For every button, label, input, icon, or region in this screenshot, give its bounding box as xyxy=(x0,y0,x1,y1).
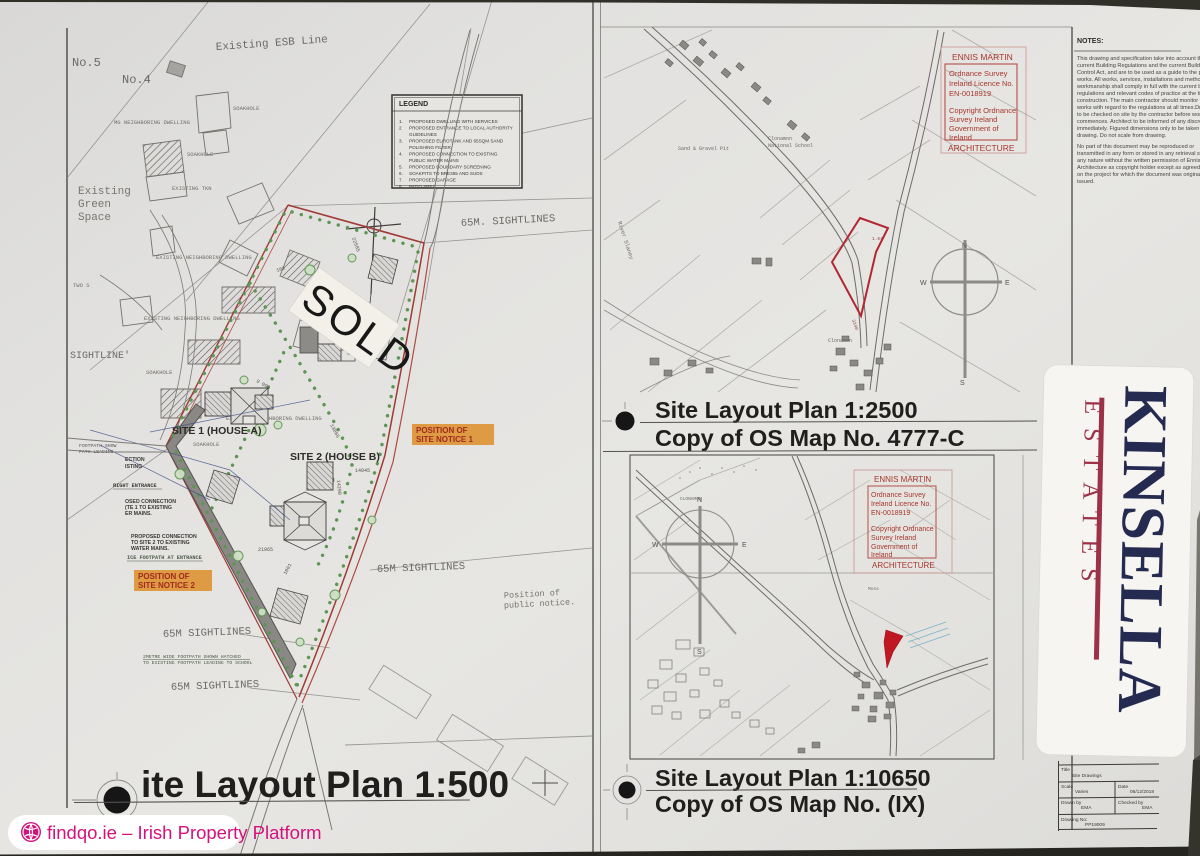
svg-text:7.: 7. xyxy=(399,178,403,183)
svg-text:EN-0018919: EN-0018919 xyxy=(871,510,910,517)
svg-text:Survey Ireland: Survey Ireland xyxy=(949,115,997,124)
svg-text:Existing: Existing xyxy=(78,186,131,198)
svg-text:Survey Ireland: Survey Ireland xyxy=(871,535,916,542)
svg-text:SITE NOTICE 1: SITE NOTICE 1 xyxy=(416,435,473,444)
svg-text:issued.: issued. xyxy=(1077,179,1095,185)
svg-text:Copy of OS Map No. (IX): Copy of OS Map No. (IX) xyxy=(655,791,925,817)
svg-text:NOTES:: NOTES: xyxy=(1077,38,1103,45)
svg-text:SIGHTLINE': SIGHTLINE' xyxy=(70,350,130,362)
svg-text:ite Layout Plan 1:500: ite Layout Plan 1:500 xyxy=(141,764,509,805)
svg-text:14045: 14045 xyxy=(355,468,370,474)
svg-text:Copyright Ordnance: Copyright Ordnance xyxy=(871,526,934,533)
svg-text:SITE 1 (HOUSE A): SITE 1 (HOUSE A) xyxy=(172,425,261,437)
svg-text:2: 2 xyxy=(399,126,402,131)
svg-text:Government of: Government of xyxy=(949,124,1000,133)
svg-text:TO EXISTING FOOTPATH LEADING T: TO EXISTING FOOTPATH LEADING TO SCHOOL xyxy=(143,660,253,666)
svg-text:National School: National School xyxy=(768,143,813,149)
svg-text:POSITION OF: POSITION OF xyxy=(416,426,468,435)
svg-text:Scale: Scale xyxy=(1061,784,1073,790)
svg-text:Checked by: Checked by xyxy=(1118,800,1144,806)
svg-text:PROPOSED GARAGE: PROPOSED GARAGE xyxy=(409,178,456,183)
svg-text:SITE NOTICE 2: SITE NOTICE 2 xyxy=(138,581,195,590)
svg-text:Copyright Ordnance: Copyright Ordnance xyxy=(949,106,1016,115)
svg-text:workmanship shall comply in fu: workmanship shall comply in full with th… xyxy=(1076,84,1200,90)
svg-text:Green: Green xyxy=(78,199,111,211)
svg-text:EXISTING NEIGHBORING DWELLING: EXISTING NEIGHBORING DWELLING xyxy=(144,315,240,322)
svg-text:Clonamon: Clonamon xyxy=(828,338,852,344)
svg-text:ARCHITECTURE: ARCHITECTURE xyxy=(872,561,935,570)
svg-text:W: W xyxy=(652,542,659,549)
svg-text:FOOTPATH SHOW: FOOTPATH SHOW xyxy=(79,443,117,449)
svg-text:SOAKHOLE: SOAKHOLE xyxy=(187,151,214,158)
svg-text:Copy of OS Map No. 4777-C: Copy of OS Map No. 4777-C xyxy=(655,425,964,451)
svg-text:Sand & Gravel Pit: Sand & Gravel Pit xyxy=(678,146,729,152)
svg-text:EXISTING NEIGHBORING DWELLING: EXISTING NEIGHBORING DWELLING xyxy=(156,254,252,261)
svg-text:commences. Architect to be inf: commences. Architect to be informed of a… xyxy=(1077,119,1200,125)
svg-text:POSITION OF: POSITION OF xyxy=(138,572,190,581)
svg-text:TWO S: TWO S xyxy=(73,282,90,289)
svg-text:works with regard to the regul: works with regard to the regulations at … xyxy=(1076,105,1200,111)
svg-text:transmitted in any form or sto: transmitted in any form or stored in any… xyxy=(1077,151,1200,157)
svg-text:SOAKHOLE: SOAKHOLE xyxy=(233,105,260,112)
svg-text:current Building Regulations a: current Building Regulations and the cur… xyxy=(1077,63,1200,69)
svg-text:PROPOSED DWELLING WITH SERVICE: PROPOSED DWELLING WITH SERVICES xyxy=(409,119,498,124)
svg-text:ISTING: ISTING xyxy=(125,464,142,470)
svg-text:Ireland: Ireland xyxy=(949,133,972,142)
svg-text:This drawing and specification: This drawing and specification take into… xyxy=(1077,56,1200,62)
svg-text:ICE FOOTPATH AT ENTRANCE: ICE FOOTPATH AT ENTRANCE xyxy=(127,555,202,561)
svg-text:E: E xyxy=(1005,280,1010,287)
svg-text:Ordnance Survey: Ordnance Survey xyxy=(949,69,1008,78)
svg-text:SITE 2 (HOUSE B): SITE 2 (HOUSE B) xyxy=(290,451,380,463)
svg-text:2METRE WIDE FOOTPATH SHOWN HAT: 2METRE WIDE FOOTPATH SHOWN HATCHED xyxy=(143,654,241,660)
svg-text:W: W xyxy=(920,280,927,287)
svg-text:MG NEIGHBORING DWELLING: MG NEIGHBORING DWELLING xyxy=(114,119,190,126)
svg-text:on the project for which the d: on the project for which the document wa… xyxy=(1077,172,1200,178)
svg-text:Site Layout Plan 1:2500: Site Layout Plan 1:2500 xyxy=(655,397,918,423)
svg-text:Drawn by: Drawn by xyxy=(1061,800,1082,806)
svg-text:1.: 1. xyxy=(399,119,403,124)
svg-text:regulations and relevant codes: regulations and relevant codes of practi… xyxy=(1077,91,1200,97)
svg-text:Government of: Government of xyxy=(871,544,917,551)
svg-text:ARCHITECTURE: ARCHITECTURE xyxy=(948,143,1015,153)
svg-text:Varies: Varies xyxy=(1075,789,1089,795)
svg-text:S: S xyxy=(960,380,965,387)
svg-text:No.4: No.4 xyxy=(122,73,151,87)
svg-text:drawing. Do not scale from dra: drawing. Do not scale from drawing. xyxy=(1077,133,1167,139)
svg-text:PROPOSED EUROTANK AND 65SQM SA: PROPOSED EUROTANK AND 65SQM SAND xyxy=(409,139,504,144)
svg-text:5.: 5. xyxy=(399,165,403,170)
svg-text:PROPOSED ENTRANCE TO LOCAL AUT: PROPOSED ENTRANCE TO LOCAL AUTHORITY xyxy=(409,126,513,131)
svg-text:Ireland Licence No.: Ireland Licence No. xyxy=(871,501,931,508)
svg-text:No part of this document may b: No part of this document may be reproduc… xyxy=(1077,144,1194,150)
svg-text:ECTION: ECTION xyxy=(125,457,145,463)
svg-text:GUIDELINES: GUIDELINES xyxy=(409,132,437,137)
svg-text:works. All works, services, in: works. All works, services, installation… xyxy=(1076,77,1200,83)
svg-text:3.: 3. xyxy=(399,139,403,144)
svg-text:8.: 8. xyxy=(399,184,403,189)
svg-text:LEGEND: LEGEND xyxy=(399,101,428,108)
svg-text:findqo.ie – Irish Property Pla: findqo.ie – Irish Property Platform xyxy=(47,822,322,843)
svg-text:Control Act, and are to be use: Control Act, and are to be used as a gui… xyxy=(1077,70,1200,76)
svg-text:Ireland Licence No.: Ireland Licence No. xyxy=(949,79,1014,88)
svg-text:PUBLIC WATER MAINS: PUBLIC WATER MAINS xyxy=(409,158,459,163)
svg-text:Moss: Moss xyxy=(868,586,879,592)
svg-text:SOAKHOLE: SOAKHOLE xyxy=(146,369,173,376)
svg-text:S: S xyxy=(697,649,702,656)
svg-text:ER MAINS.: ER MAINS. xyxy=(125,511,152,517)
svg-text:EN-0018919: EN-0018919 xyxy=(949,89,991,98)
svg-text:POLISHING FILTER: POLISHING FILTER xyxy=(409,145,451,150)
svg-text:Drawing No:: Drawing No: xyxy=(1061,817,1087,823)
svg-text:PROPOSED BOUNDARY SCREENING: PROPOSED BOUNDARY SCREENING xyxy=(409,165,491,170)
svg-text:EMA: EMA xyxy=(1142,805,1153,811)
svg-text:construction. The main contrac: construction. The main contractor should… xyxy=(1077,98,1200,104)
svg-text:N: N xyxy=(962,243,967,250)
svg-text:4.: 4. xyxy=(399,152,403,157)
svg-text:Space: Space xyxy=(78,212,111,224)
svg-text:EXISTING TKN: EXISTING TKN xyxy=(172,185,212,192)
svg-text:ENNIS MARTIN: ENNIS MARTIN xyxy=(874,475,931,484)
svg-text:6.: 6. xyxy=(399,171,403,176)
svg-text:SOAKPITS TO BRE365 AND SUDS: SOAKPITS TO BRE365 AND SUDS xyxy=(409,171,483,176)
svg-text:WATER MAINS.: WATER MAINS. xyxy=(131,546,170,552)
svg-text:ENNIS MARTIN: ENNIS MARTIN xyxy=(952,52,1013,62)
svg-text:Ordnance Survey: Ordnance Survey xyxy=(871,492,926,499)
svg-text:to be checked on site by the c: to be checked on site by the contractor … xyxy=(1077,112,1200,118)
svg-text:No.5: No.5 xyxy=(72,56,101,70)
svg-text:Architecture as copyright hold: Architecture as copyright holder except … xyxy=(1077,165,1200,171)
svg-text:Ireland: Ireland xyxy=(871,552,893,559)
svg-text:Clonamon: Clonamon xyxy=(768,136,792,142)
svg-text:Date: Date xyxy=(1118,784,1128,790)
svg-text:EMA: EMA xyxy=(1081,805,1092,811)
svg-text:PATIO AREA: PATIO AREA xyxy=(409,184,437,189)
svg-text:KINSELLA: KINSELLA xyxy=(1105,385,1180,715)
svg-text:PP19009: PP19009 xyxy=(1085,822,1105,828)
svg-text:21965: 21965 xyxy=(258,547,273,553)
svg-text:PROPOSED CONNECTION TO EXISTIN: PROPOSED CONNECTION TO EXISTING xyxy=(409,152,498,157)
svg-text:E: E xyxy=(742,542,747,549)
svg-text:06/12/2018: 06/12/2018 xyxy=(1130,789,1154,795)
svg-text:RIGHT ENTRANCE: RIGHT ENTRANCE xyxy=(113,483,157,489)
svg-text:1.64: 1.64 xyxy=(872,236,883,242)
svg-text:Site Drawings: Site Drawings xyxy=(1072,773,1102,779)
svg-text:Title: Title xyxy=(1061,767,1070,773)
svg-text:N: N xyxy=(697,497,702,504)
svg-text:any nature without the written: any nature without the written permissio… xyxy=(1077,158,1200,164)
svg-text:Site Layout Plan 1:10650: Site Layout Plan 1:10650 xyxy=(655,765,931,791)
svg-text:SOAKHOLE: SOAKHOLE xyxy=(193,441,220,448)
svg-text:immediately. Figured dimension: immediately. Figured dimensions only to … xyxy=(1077,126,1200,132)
